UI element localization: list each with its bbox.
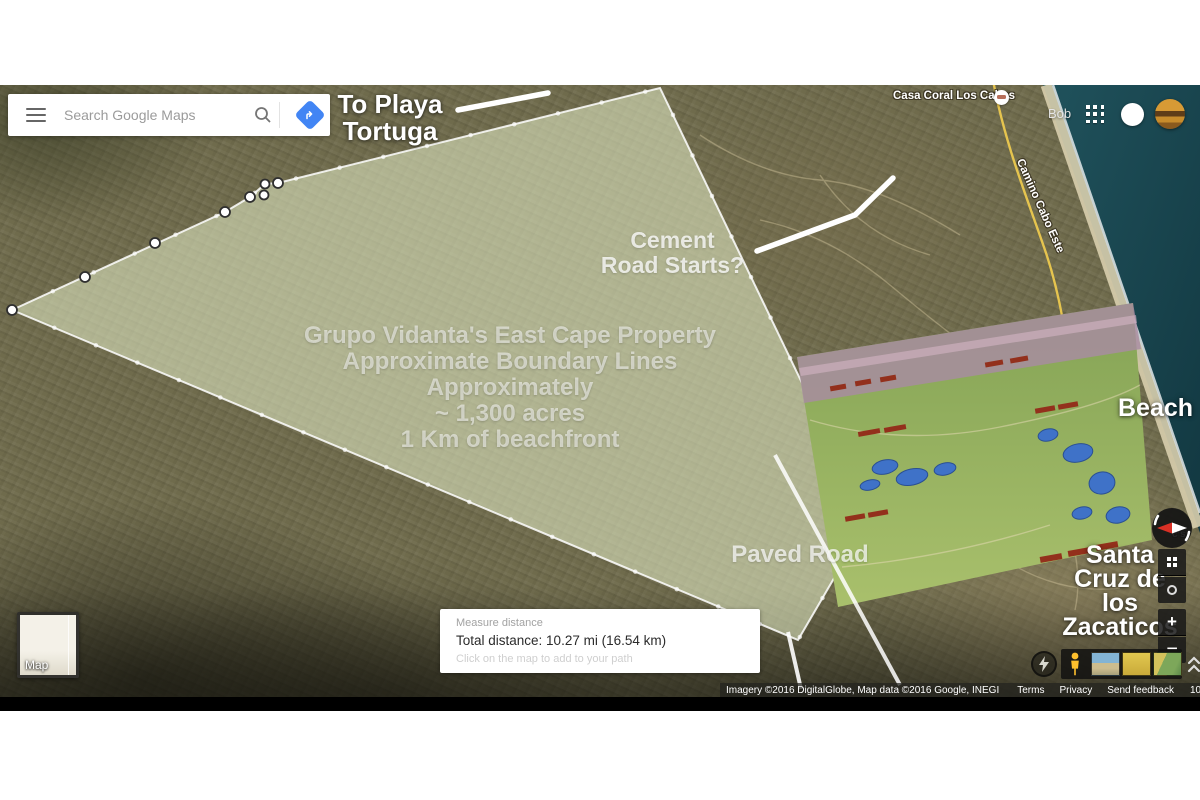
scale-label: 1000 ft — [1190, 685, 1200, 696]
hamburger-menu-icon[interactable] — [26, 108, 46, 122]
imagery-grid-icon — [1167, 557, 1177, 567]
letterbox-strip — [0, 697, 1200, 711]
measure-hint: Click on the map to add to your path — [456, 653, 760, 665]
directions-icon[interactable] — [290, 94, 330, 136]
imagery-carousel — [1061, 649, 1182, 679]
imagery-thumbnail-1[interactable] — [1091, 652, 1120, 676]
google-maps-window: Casa Coral Los Cabos Camino Cabo Este c'… — [0, 0, 1200, 800]
imagery-thumbnail-2[interactable] — [1122, 652, 1151, 676]
measure-title: Measure distance — [456, 617, 760, 629]
search-divider — [279, 102, 280, 128]
imagery-grid-button[interactable] — [1158, 549, 1186, 576]
lite-mode-lightning-icon[interactable] — [1031, 651, 1057, 677]
zoom-in-button[interactable]: + — [1158, 609, 1186, 636]
user-avatar[interactable] — [1155, 99, 1185, 129]
map-toggle-label: Map — [25, 658, 48, 672]
notification-circle-icon[interactable] — [1121, 103, 1144, 126]
map-type-toggle[interactable]: Map — [17, 612, 79, 678]
annotation-beach: Beach — [1118, 396, 1200, 421]
search-icon[interactable] — [253, 105, 273, 125]
apps-grid-icon[interactable] — [1086, 105, 1105, 124]
map-canvas[interactable]: Casa Coral Los Cabos Camino Cabo Este c'… — [0, 85, 1200, 697]
compass-icon[interactable] — [1150, 506, 1194, 550]
attribution-bar: Imagery ©2016 DigitalGlobe, Map data ©20… — [720, 683, 1200, 697]
send-feedback-link[interactable]: Send feedback — [1107, 685, 1174, 696]
measure-total: Total distance: 10.27 mi (16.54 km) — [456, 633, 760, 648]
terms-link[interactable]: Terms — [1017, 685, 1044, 696]
my-location-button[interactable] — [1158, 577, 1186, 603]
imagery-thumbnail-3[interactable] — [1153, 652, 1182, 676]
annotation-property-description: Grupo Vidanta's East Cape Property Appro… — [270, 323, 750, 453]
search-card — [8, 94, 330, 136]
imagery-credit: Imagery ©2016 DigitalGlobe, Map data ©20… — [726, 685, 999, 696]
annotation-cement-road: Cement Road Starts? — [545, 228, 800, 278]
search-input[interactable] — [64, 107, 253, 123]
pegman-icon[interactable] — [1061, 649, 1089, 679]
lodging-poi-icon[interactable] — [994, 90, 1009, 105]
account-name[interactable]: Bob — [1048, 106, 1071, 121]
chevron-up-icon[interactable] — [1186, 653, 1200, 677]
annotation-paved-road: Paved Road — [710, 543, 890, 567]
my-location-icon — [1167, 585, 1177, 595]
measure-distance-panel: Measure distance Total distance: 10.27 m… — [440, 609, 760, 673]
privacy-link[interactable]: Privacy — [1059, 685, 1092, 696]
